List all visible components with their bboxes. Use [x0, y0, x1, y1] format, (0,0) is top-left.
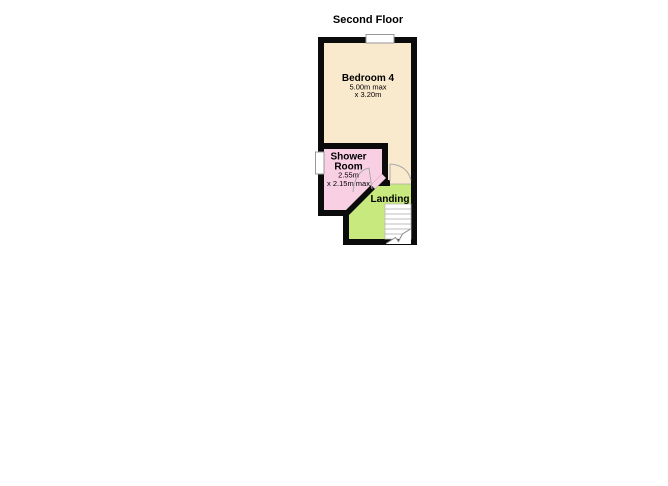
floor-title: Second Floor	[333, 14, 404, 26]
staircase	[385, 204, 411, 244]
floorplan-drawing: Second Floor	[0, 0, 668, 486]
floorplan-page: Second Floor	[0, 0, 668, 486]
bedroom-window-icon	[366, 35, 394, 44]
shower-window-icon	[316, 152, 325, 174]
shower-dim2-label: x 2.15m max	[327, 179, 370, 188]
bedroom-door-opening	[390, 180, 411, 184]
bedroom-dim2-label: x 3.20m	[355, 90, 382, 99]
landing-name-label: Landing	[371, 194, 410, 205]
